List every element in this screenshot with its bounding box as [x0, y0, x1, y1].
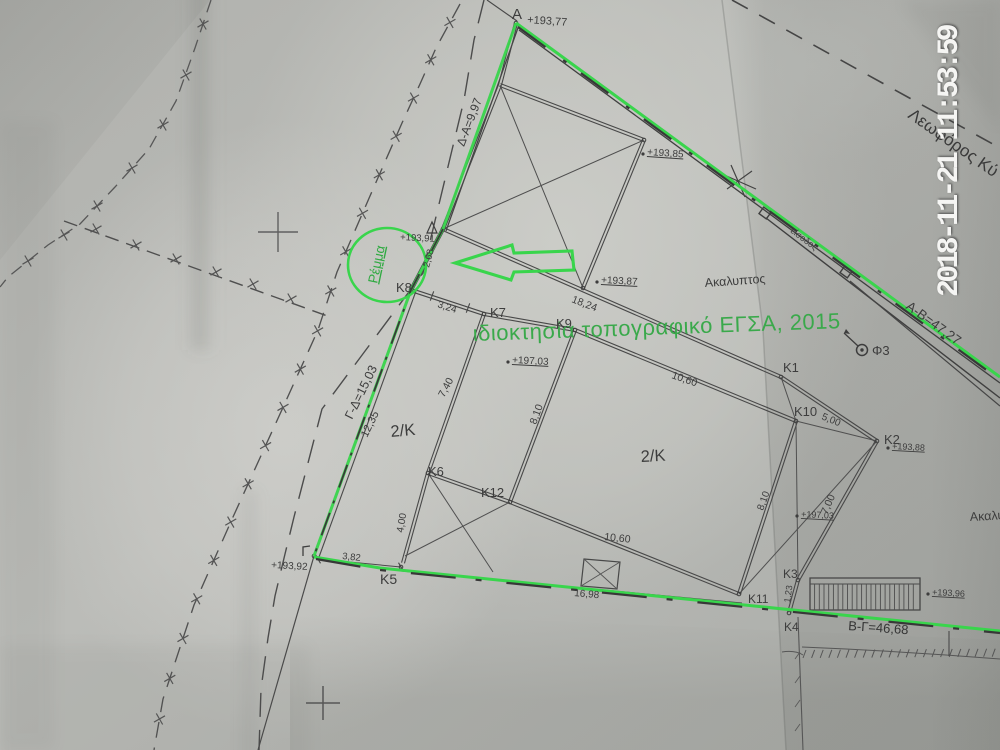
svg-text:Ακαλυ: Ακαλυ: [969, 508, 1000, 524]
svg-text:16,98: 16,98: [574, 588, 600, 601]
svg-text:Κ7: Κ7: [490, 305, 506, 320]
svg-text:Φ3: Φ3: [872, 343, 890, 358]
svg-text:2018-11-21 11:53:59: 2018-11-21 11:53:59: [933, 24, 967, 297]
svg-text:Α: Α: [512, 6, 522, 23]
svg-text:Κ4: Κ4: [784, 620, 799, 634]
svg-text:+193,88: +193,88: [892, 441, 925, 453]
svg-text:3,82: 3,82: [342, 551, 362, 564]
svg-text:+197,03: +197,03: [512, 355, 549, 368]
svg-text:Κ1: Κ1: [783, 360, 799, 375]
svg-text:Κ8: Κ8: [396, 280, 412, 295]
svg-text:2/Κ: 2/Κ: [390, 421, 416, 441]
svg-text:Κ11: Κ11: [748, 592, 769, 606]
svg-text:Κ6: Κ6: [428, 464, 444, 479]
svg-text:2/Κ: 2/Κ: [640, 447, 666, 466]
svg-text:+193,91: +193,91: [400, 232, 435, 245]
svg-text:Κ9: Κ9: [556, 316, 572, 331]
svg-text:Κ12: Κ12: [481, 485, 504, 500]
svg-text:Κ10: Κ10: [794, 404, 817, 419]
svg-text:+193,92: +193,92: [271, 560, 308, 573]
svg-text:Κ5: Κ5: [380, 571, 397, 587]
svg-text:+193,87: +193,87: [601, 275, 638, 288]
svg-text:Κ3: Κ3: [783, 567, 798, 581]
svg-text:+193,96: +193,96: [932, 587, 965, 599]
